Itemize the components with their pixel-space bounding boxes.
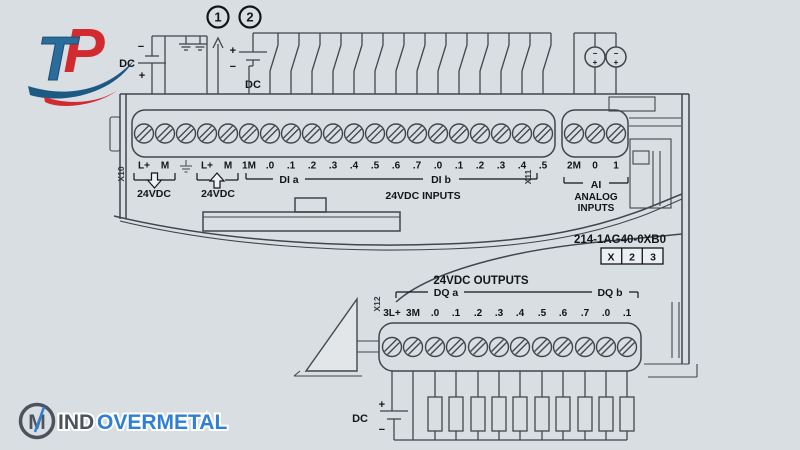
x12-terminal-label: 3L+: [383, 308, 401, 319]
x10-terminal-label: L+: [201, 161, 213, 172]
x11-terminal-label: 0: [592, 161, 598, 172]
x10-terminal-label: .1: [455, 161, 464, 172]
order-box: X 2 3: [601, 248, 663, 264]
x11-connector-label: X11: [523, 169, 533, 184]
callout-2-number: 2: [246, 10, 253, 25]
sensor-supply-label: 24VDC: [137, 188, 171, 200]
dc-out-label: DC: [352, 413, 368, 425]
dq-b-label: DQ b: [597, 287, 622, 299]
outputs-title: 24VDC OUTPUTS: [433, 275, 529, 287]
di-a-label: DI a: [279, 174, 298, 186]
x12-terminal-label: .1: [452, 308, 461, 319]
tp-logo-letter-t: T: [37, 25, 80, 94]
analog1-plus: +: [593, 58, 598, 67]
analog-inputs-line2: INPUTS: [578, 203, 615, 214]
x10-terminal-label: .5: [539, 161, 548, 172]
dc-in-minus: −: [230, 61, 236, 73]
dq-a-label: DQ a: [434, 287, 459, 299]
x10-terminal-label: M: [161, 161, 169, 172]
x10-terminal-label: .0: [266, 161, 275, 172]
x10-terminal-label: .5: [371, 161, 380, 172]
order-box-cell-x: X: [607, 252, 614, 264]
dc-out-minus: −: [379, 424, 385, 436]
dc-out-plus: +: [379, 399, 385, 411]
x11-terminal-label: 1: [613, 161, 619, 172]
callout-1-number: 1: [214, 10, 221, 25]
dc-left-label: DC: [119, 58, 135, 70]
x10-terminal-label: .2: [476, 161, 485, 172]
ai-label: AI: [591, 179, 602, 191]
x10-terminal-label: .3: [329, 161, 338, 172]
analog-inputs-line1: ANALOG: [574, 192, 618, 203]
analog2-plus: +: [614, 58, 619, 67]
x10-terminal-label: .4: [350, 161, 359, 172]
article-number: 214-1AG40-0XB0: [574, 234, 666, 246]
x10-terminal-label: .7: [413, 161, 422, 172]
x11-terminal-label: 2M: [567, 161, 581, 172]
x10-terminal-label: .1: [287, 161, 296, 172]
x12-terminal-label: .6: [559, 308, 568, 319]
footer-logo-part1: IND: [58, 411, 94, 434]
x12-terminal-label: .1: [623, 308, 632, 319]
x10-terminal-label: .3: [497, 161, 506, 172]
x10-terminal-label: L+: [138, 161, 150, 172]
x12-terminal-label: .7: [581, 308, 590, 319]
footer-logo-monogram: M: [28, 411, 46, 434]
x12-terminal-label: .0: [602, 308, 611, 319]
x10-terminal-label: .0: [434, 161, 443, 172]
x12-terminal-label: .3: [495, 308, 504, 319]
x12-terminal-label: .4: [516, 308, 525, 319]
dc-in-plus: +: [230, 45, 236, 57]
dc-left-minus: −: [138, 41, 144, 53]
power-supply-label: 24VDC: [201, 188, 235, 200]
x12-connector-label: X12: [372, 296, 382, 311]
x12-terminal-label: .5: [538, 308, 547, 319]
order-box-cell-3: 3: [650, 252, 656, 264]
dc-in-label: DC: [245, 79, 261, 91]
di-b-label: DI b: [431, 174, 451, 186]
analog2-minus: −: [614, 49, 619, 58]
x12-terminal-label: .2: [474, 308, 483, 319]
x10-terminal-label: .2: [308, 161, 317, 172]
x10-connector-label: X10: [116, 166, 126, 181]
inputs-title: 24VDC INPUTS: [385, 190, 460, 202]
x10-terminal-label: 1M: [242, 161, 256, 172]
order-box-cell-2: 2: [629, 252, 635, 264]
x10-terminal-label: M: [224, 161, 232, 172]
analog1-minus: −: [593, 49, 598, 58]
x12-terminal-label: 3M: [406, 308, 420, 319]
x12-terminal-label: .0: [431, 308, 440, 319]
x10-terminal-label: .6: [392, 161, 401, 172]
plc-wiring-diagram: P T 1 2 − DC + + − DC: [0, 0, 800, 450]
footer-logo-part2: OVERMETAL: [97, 411, 227, 434]
dc-left-plus: +: [139, 70, 145, 82]
